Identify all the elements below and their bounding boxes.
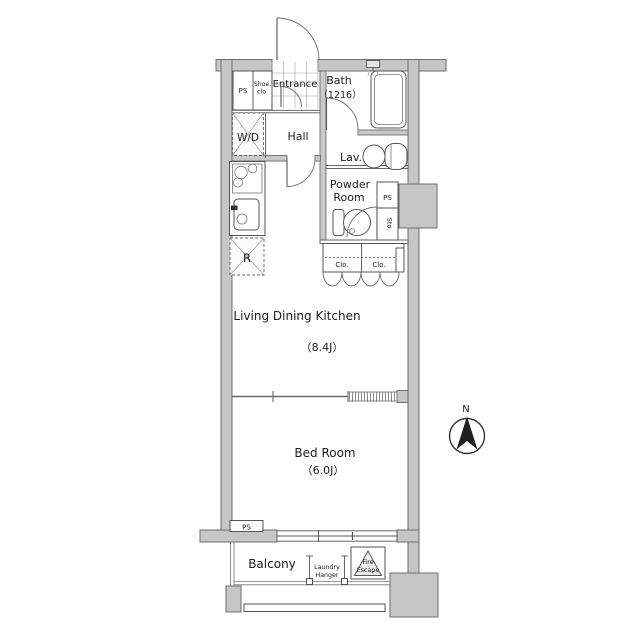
label-ldk-size: （8.4J）: [301, 341, 344, 354]
label-ldk: Living Dining Kitchen: [233, 309, 360, 323]
label-ps-right: PS: [383, 194, 392, 202]
label-balcony: Balcony: [248, 557, 296, 571]
label-wd: W/D: [237, 132, 259, 144]
bathtub-icon: [371, 71, 406, 128]
floor-plan-page: PS Shoe. clo. Entrance Bath （1216） W/D H…: [0, 0, 640, 640]
hall-door-icon: [287, 159, 315, 187]
label-powder-2: Room: [333, 191, 364, 204]
label-north: N: [462, 404, 469, 415]
bath-door-icon: [327, 98, 359, 130]
block-balcony-left: [226, 586, 241, 612]
label-bath: Bath: [326, 74, 352, 87]
pillar-right: [399, 184, 437, 228]
label-hall: Hall: [287, 130, 308, 143]
label-shoe-1: Shoe.: [254, 81, 271, 88]
label-laundry-2: Hanger: [315, 572, 338, 579]
label-ps-top: PS: [239, 87, 248, 95]
label-fire-1: Fire: [362, 559, 373, 566]
partition-wall-stub: [397, 391, 408, 403]
label-shoe-2: clo.: [257, 89, 268, 96]
sliding-partition: [232, 391, 397, 402]
label-sto: Sto.: [386, 218, 394, 231]
label-bedroom-size: （6.0J）: [302, 464, 345, 477]
kitchen-sink-icon: [231, 199, 259, 230]
label-bedroom: Bed Room: [294, 446, 355, 460]
label-powder-1: Powder: [330, 178, 371, 191]
compass-icon: [450, 417, 485, 454]
south-windows: [277, 530, 397, 542]
label-closet-left: Clo.: [335, 261, 348, 269]
closet-folding-doors: [323, 272, 399, 286]
ps-sto-boxes: [377, 182, 398, 240]
room-labels: PS Shoe. clo. Entrance Bath （1216） W/D H…: [233, 74, 469, 579]
label-entrance: Entrance: [273, 79, 318, 90]
label-refrigerator: R: [243, 251, 251, 265]
label-ps-bottom: PS: [242, 524, 251, 532]
label-closet-right: Clo.: [372, 261, 385, 269]
block-bottom-right: [390, 573, 438, 617]
label-lav: Lav.: [340, 151, 362, 164]
label-laundry-1: Laundry: [314, 564, 340, 571]
label-fire-2: Escape: [357, 567, 380, 574]
floor-plan-drawing: PS Shoe. clo. Entrance Bath （1216） W/D H…: [0, 0, 640, 640]
entrance-door-icon: [277, 18, 319, 60]
label-bath-size: （1216）: [318, 89, 361, 101]
toilet-icon: [333, 210, 371, 236]
